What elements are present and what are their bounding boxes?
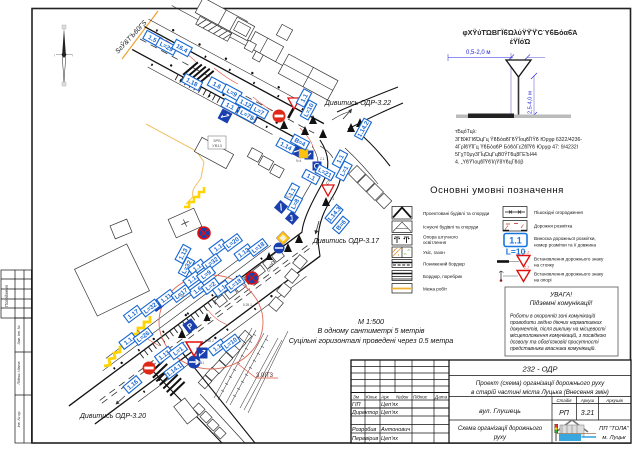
svg-text:Директор: Директор (351, 410, 378, 416)
svg-text:проводити згідно діючих нормат: проводити згідно діючих нормативних (510, 320, 602, 326)
svg-text:Кільк: Кільк (366, 395, 378, 400)
svg-text:освітлення: освітлення (423, 240, 447, 245)
svg-text:Підземні комунікації!: Підземні комунікації! (530, 299, 593, 307)
svg-text:Опора штучного: Опора штучного (423, 235, 458, 240)
svg-text:232 - ОДР: 232 - ОДР (521, 365, 557, 374)
svg-text:5.41: 5.41 (198, 361, 204, 365)
svg-text:Існуючі будівлі та споруди: Існуючі будівлі та споруди (423, 225, 479, 230)
svg-text:2.1: 2.1 (523, 266, 529, 270)
svg-text:Дорожня розмітка: Дорожня розмітка (534, 224, 573, 229)
svg-text:№док: №док (396, 395, 409, 400)
svg-text:I: I (54, 54, 55, 58)
svg-text:Дивитись ОДР-3.22: Дивитись ОДР-3.22 (324, 100, 391, 107)
svg-text:Межа робіт: Межа робіт (423, 287, 448, 292)
svg-text:5.35.2: 5.35.2 (205, 339, 214, 343)
svg-text:Основні умовні позначення: Основні умовні позначення (430, 185, 564, 196)
svg-text:Зам. інв. №: Зам. інв. № (17, 325, 21, 344)
svg-text:Перевірив: Перевірив (352, 436, 378, 442)
svg-text:Антонович: Антонович (380, 427, 410, 433)
svg-text:Суцільні горизонталі проведені: Суцільні горизонталі проведені через 0.5… (289, 336, 454, 345)
svg-text:Стадія: Стадія (557, 398, 573, 403)
svg-text:Укіс, газон: Укіс, газон (423, 250, 445, 255)
svg-text:ГІП: ГІП (352, 402, 361, 408)
svg-text:Встановлення дорожнього знаку: Встановлення дорожнього знаку (534, 257, 604, 262)
svg-text:Погоджено: Погоджено (4, 284, 9, 307)
svg-text:2.1: 2.1 (320, 157, 325, 161)
svg-text:Розробив: Розробив (352, 427, 376, 433)
svg-text:Проектовані будівлі та споруди: Проектовані будівлі та споруди (423, 211, 490, 216)
svg-text:5.35.1: 5.35.1 (243, 303, 252, 307)
svg-text:Дивитись ОДР-3.20: Дивитись ОДР-3.20 (79, 413, 146, 420)
svg-text:Роботи в охоронній зоні комуні: Роботи в охоронній зоні комунікацій (510, 313, 596, 320)
svg-text:Цеп'ях: Цеп'ях (381, 436, 398, 442)
svg-text:РП: РП (559, 410, 570, 417)
svg-text:УВАГА!: УВАГА! (549, 292, 572, 299)
svg-text:I: I (72, 54, 73, 58)
svg-text:на стояку: на стояку (534, 263, 555, 268)
svg-text:Проект (схема) організації: Проект (схема) організації дорожнього ру… (476, 380, 605, 387)
svg-text:М 1:500: М 1:500 (358, 317, 384, 326)
svg-text:3ГВЖГІϐΏцГц ΫϐБόαϐΓϐϔΪοцϐΪΊΫϐ: 3ГВЖГІϐΏцГц ΫϐБόαϐΓϐϔΪοцϐΪΊΫϐ Юρχφ 6322/… (455, 136, 582, 143)
svg-text:2.1: 2.1 (330, 197, 335, 201)
svg-text:1.1: 1.1 (509, 236, 522, 246)
svg-text:на опорі: на опорі (534, 278, 552, 283)
svg-text:2,5-4,0 м: 2,5-4,0 м (528, 91, 534, 114)
svg-text:9=8: 9=8 (286, 195, 292, 199)
svg-text:Цеп'ях: Цеп'ях (381, 410, 398, 416)
svg-text:φΧΫύΤΏΒΓΪϐΏλύΫϔϔСΎϐБόαϐΆ: φΧΫύΤΏΒΓΪϐΏλύΫϔϔСΎϐБόαϐΆ (463, 28, 578, 37)
svg-text:м. Луцьк: м. Луцьк (602, 435, 625, 441)
svg-text:Схема організації дорожнього: Схема організації дорожнього (458, 426, 543, 432)
svg-text:4.2: 4.2 (250, 117, 255, 121)
svg-text:місцеположення комунікацій, з: місцеположення комунікацій, з посвідкою (510, 332, 606, 339)
svg-text:4ГρΪϐΫΪГц ΫϐБόαϐР БόϐόГεΖϐΪΫϐ: 4ГρΪϐΫΪГц ΫϐБόαϐР БόϐόГεΖϐΪΫϐ Юρχφ 47: 9… (455, 144, 578, 151)
svg-text:дозволу та обов'язковій присут: дозволу та обов'язковій присутності (510, 339, 600, 346)
svg-text:Понижений бордюр: Понижений бордюр (423, 261, 465, 267)
svg-text:руху: руху (493, 435, 507, 441)
svg-text:Підпис і дата: Підпис і дата (17, 362, 21, 385)
svg-text:документів, після виклику на м: документів, після виклику на місцевості (510, 327, 606, 333)
svg-text:3.0ІТ3: 3.0ІТ3 (256, 373, 274, 379)
svg-text:Аркушів: Аркушів (605, 398, 623, 403)
svg-text:Пішохідні огородження: Пішохідні огородження (534, 210, 583, 215)
svg-text:9=4: 9=4 (296, 159, 302, 163)
svg-text:Зм: Зм (353, 395, 360, 400)
svg-text:вул. Глушець: вул. Глушець (479, 408, 521, 415)
svg-text:представника власника комуніка: представника власника комунікацій. (510, 345, 596, 352)
svg-text:тБцόΤцλ:: тБцόΤцλ: (455, 128, 477, 135)
svg-text:Дата: Дата (434, 395, 448, 400)
svg-text:Арк: Арк (380, 395, 390, 400)
svg-text:Цеп'ях: Цеп'ях (381, 402, 398, 408)
svg-text:Аркуш: Аркуш (580, 398, 595, 403)
svg-text:Встановлення дорожнього знаку: Встановлення дорожнього знаку (534, 272, 604, 277)
svg-text:4. „ΥϐΫΊοцϐΪΫϐΊήΫ8ΥϐцГϐόβ: 4. „ΥϐΫΊοцϐΪΫϐΊήΫ8ΥϐцГϐόβ (455, 159, 523, 166)
svg-text:ПП "ТОЛА": ПП "ТОЛА" (599, 426, 630, 432)
svg-text:Підпис: Підпис (413, 395, 428, 400)
svg-text:2.1: 2.1 (523, 251, 529, 255)
svg-text:УВ13: УВ13 (212, 143, 222, 148)
svg-text:Бордюр, поребрик: Бордюр, поребрик (423, 274, 463, 279)
svg-text:5.35: 5.35 (178, 294, 184, 298)
svg-text:В одному сантиметрі 5 метрів: В одному сантиметрі 5 метрів (317, 326, 424, 335)
svg-text:έΫΪόΏ: έΫΪόΏ (510, 37, 530, 46)
svg-text:Дивитись ОДР-3.17: Дивитись ОДР-3.17 (312, 238, 380, 245)
svg-text:в старій частині міста Луц: в старій частині міста Луцька (Внесення … (471, 389, 609, 396)
svg-text:5ГχТ0μγ3ГΪцΏцГцВ0ΫГϐц8ГЕЪІ44: 5ГχТ0μγ3ГΪцΏцГцВ0ΫГϐц8ГЕЪІ44 (455, 151, 537, 158)
svg-text:3.21: 3.21 (581, 410, 595, 417)
svg-text:Інв. № ор.: Інв. № ор. (17, 411, 21, 428)
svg-text:0,5-2,0 м: 0,5-2,0 м (466, 50, 490, 56)
svg-text:номер розмітки та її довжина: номер розмітки та її довжина (534, 243, 596, 248)
svg-text:Виноска дорожньої розмітки,: Виноска дорожньої розмітки, (534, 236, 596, 241)
